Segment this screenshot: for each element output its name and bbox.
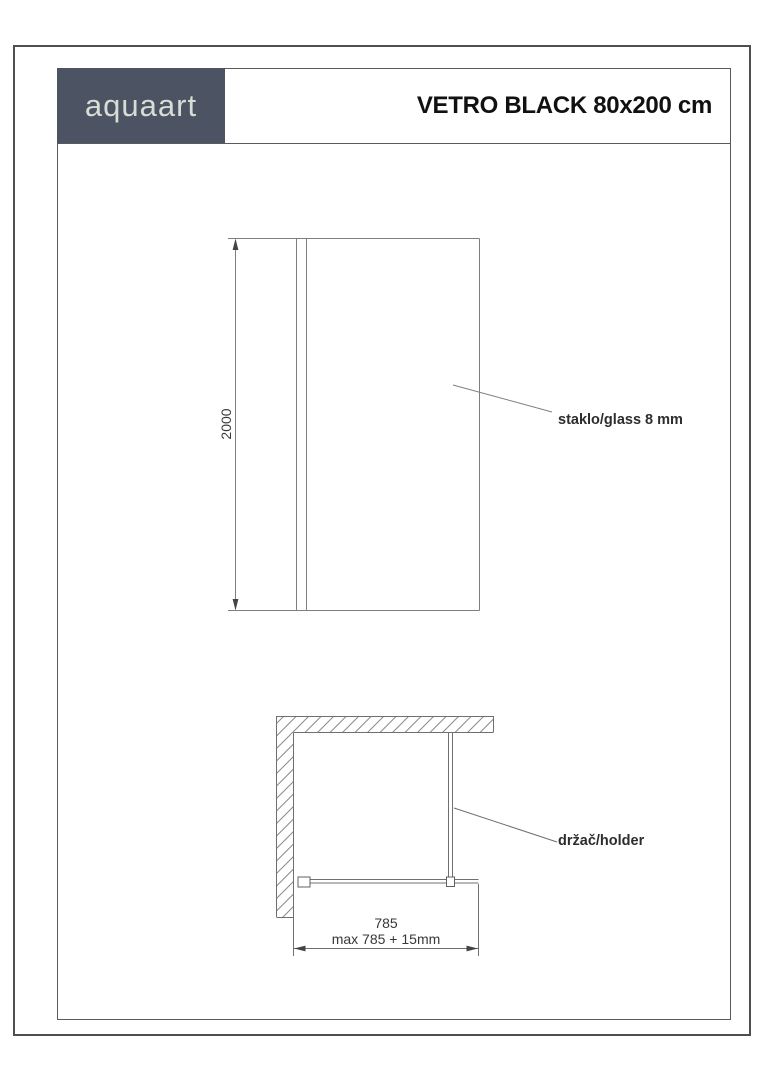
width-max-label: max 785 + 15mm <box>293 931 479 947</box>
glass-leader-line <box>453 385 552 412</box>
width-dimension-label: 785 <box>293 915 479 931</box>
wall-hatch-left <box>276 732 293 917</box>
wall-profile-plan <box>298 877 310 887</box>
holder-label: držač/holder <box>558 833 644 849</box>
height-dim-arrow-top <box>233 239 239 251</box>
height-dimension-label: 2000 <box>218 408 234 439</box>
holder-leader-line <box>454 808 557 842</box>
wall-hatch-top <box>276 716 493 732</box>
front-view-drawing <box>228 239 552 611</box>
height-dim-arrow-bottom <box>233 599 239 611</box>
glass-label: staklo/glass 8 mm <box>558 412 683 428</box>
holder-clamp <box>447 877 455 887</box>
